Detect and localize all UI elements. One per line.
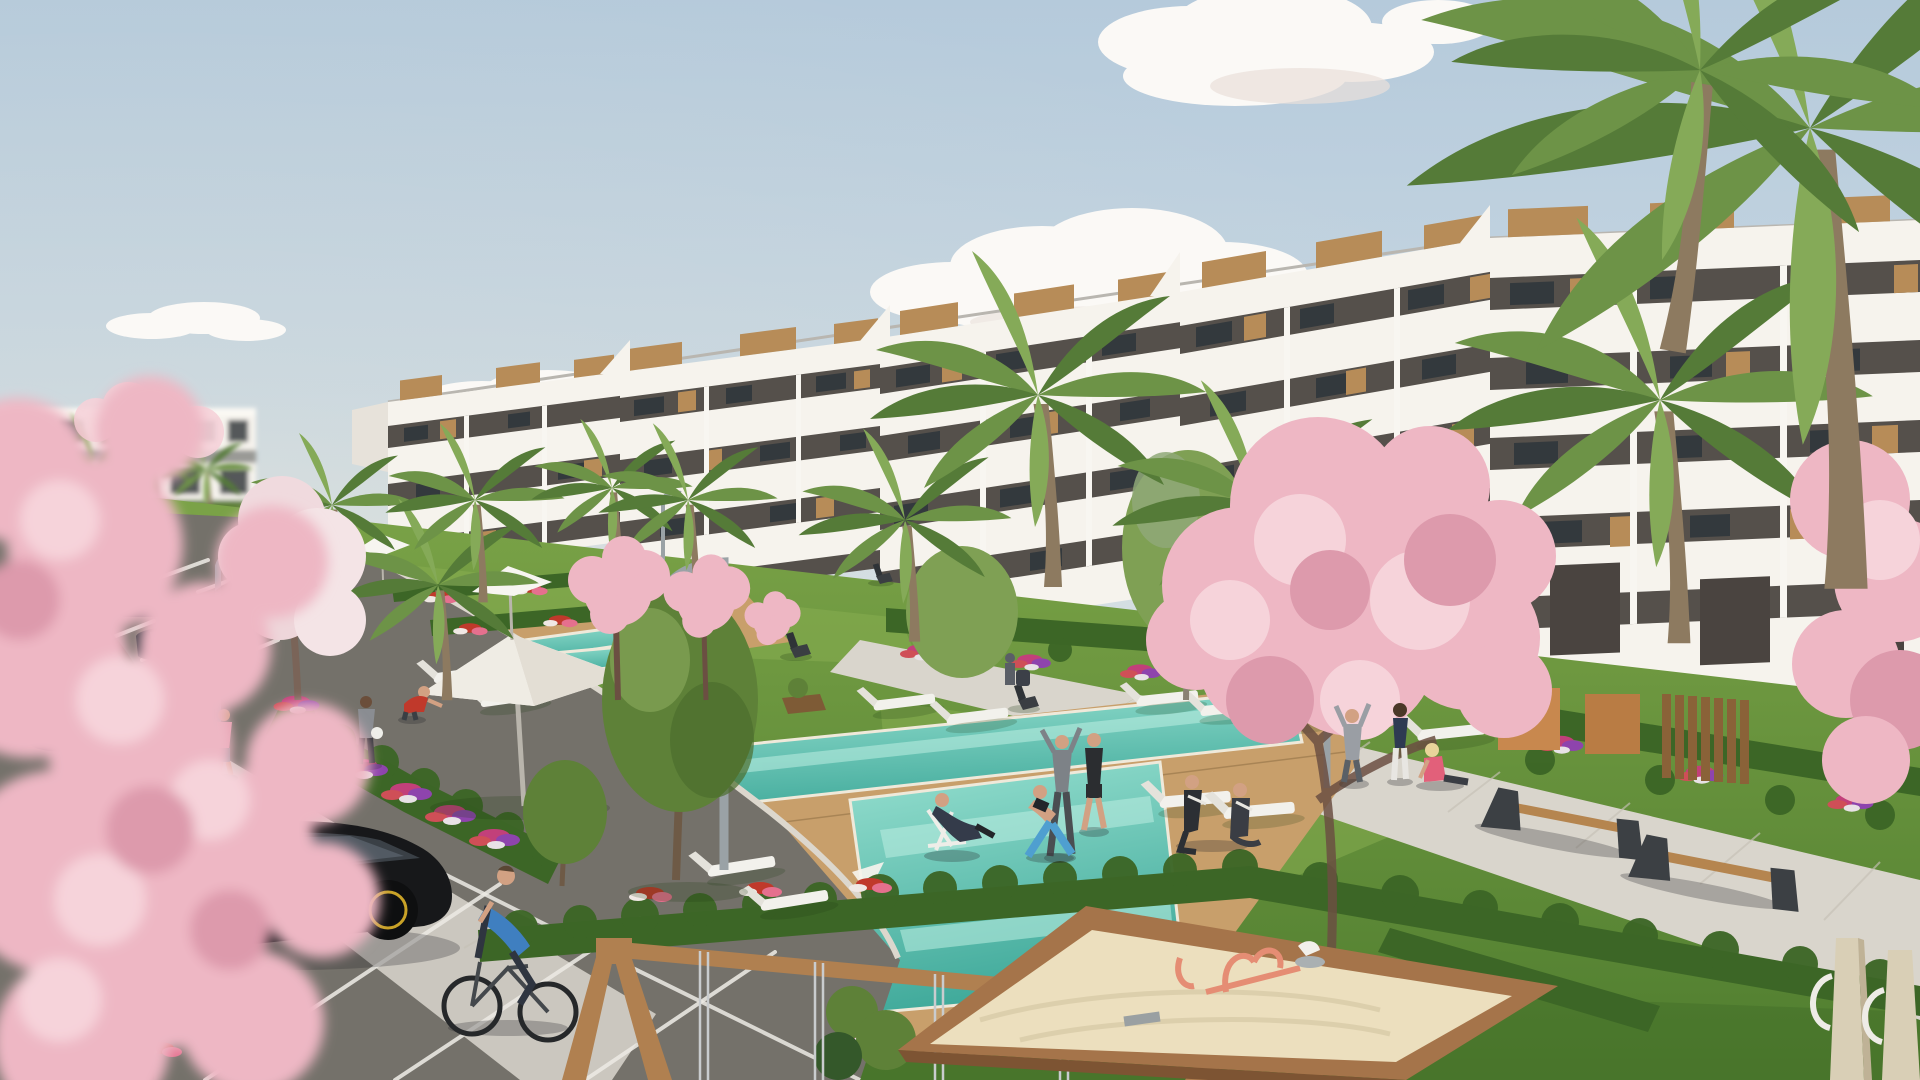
- football: [371, 727, 383, 739]
- rider-seat: [1295, 956, 1325, 968]
- timber-fence: [1662, 694, 1749, 784]
- tree-behind-pool: [906, 546, 1018, 678]
- scene-canvas: [0, 0, 1920, 1080]
- render-viewport: [0, 0, 1920, 1080]
- shrub: [814, 1032, 862, 1080]
